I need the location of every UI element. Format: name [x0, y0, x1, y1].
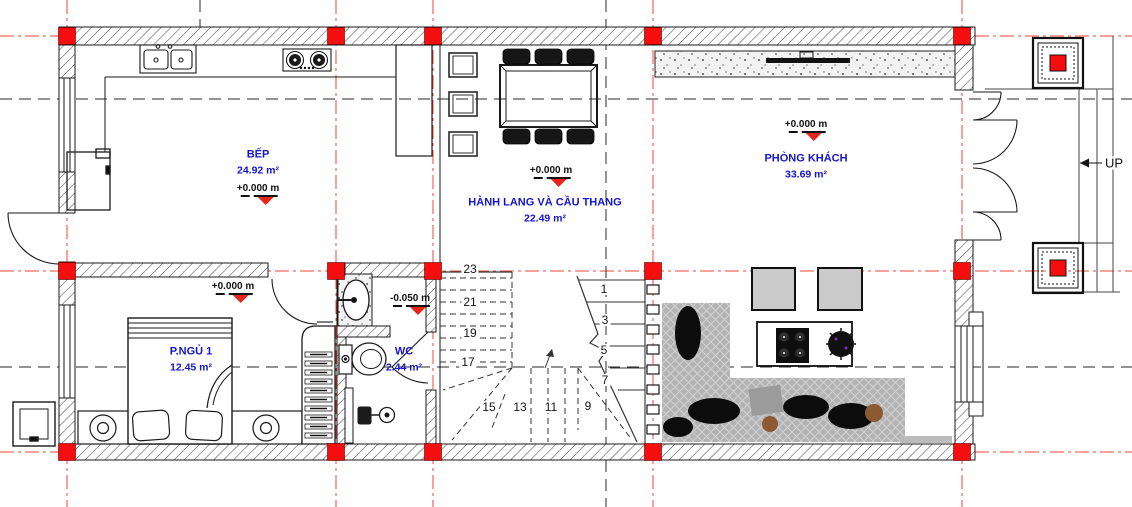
level-marker: +0.000 m	[237, 183, 280, 205]
stair-number: 15	[480, 401, 497, 413]
stair-number: 23	[461, 263, 478, 275]
room-area: 12.45 m²	[170, 361, 213, 374]
toilet	[339, 343, 386, 375]
stair-number: 13	[511, 401, 528, 413]
stair-treads-upper	[440, 272, 512, 368]
decorative-column	[1033, 243, 1083, 293]
wardrobe	[302, 326, 335, 444]
level-dash	[393, 305, 402, 307]
room-label-kitchen: BẾP 24.92 m²	[237, 149, 279, 178]
sofa-cushion	[688, 398, 740, 424]
door-kitchen-exterior	[8, 213, 59, 264]
armchair	[752, 268, 795, 310]
wall-top	[59, 27, 975, 45]
stair-direction-arrow	[545, 349, 554, 368]
room-label-living: PHÒNG KHÁCH 33.69 m²	[764, 153, 847, 182]
bed	[128, 318, 232, 444]
wall-left	[59, 398, 75, 444]
stair-number: 21	[461, 296, 478, 308]
decorative-column	[1033, 38, 1083, 88]
room-name: WC	[386, 346, 422, 360]
stair-number: 7	[600, 374, 611, 386]
dining-set	[449, 49, 597, 156]
wall-right	[955, 45, 973, 90]
up-label: UP	[1104, 157, 1124, 170]
stair-number: 3	[600, 314, 611, 326]
pillow	[185, 410, 222, 441]
level-triangle-icon	[803, 131, 823, 141]
room-label-hallway: HÀNH LANG VÀ CẦU THANG 22.49 m²	[468, 197, 621, 226]
level-dash	[533, 177, 542, 179]
kitchen-sink	[140, 45, 196, 73]
wall-middle	[59, 263, 268, 277]
room-name: BẾP	[237, 149, 279, 163]
sofa-pillow	[748, 385, 783, 416]
stair-break-line	[577, 276, 637, 442]
stair-number: 11	[543, 401, 559, 413]
sofa-cushion	[783, 395, 829, 419]
sofa-cushion	[675, 306, 701, 360]
level-triangle-icon	[408, 305, 428, 315]
stair-treads-lower	[579, 280, 645, 390]
folding-doors-porch	[973, 92, 1017, 240]
stair-number: 1	[599, 283, 610, 295]
up-arrow-icon	[1080, 159, 1102, 168]
stair-number: 19	[461, 327, 478, 339]
level-dash	[788, 131, 797, 133]
wall-wc-inner	[337, 326, 390, 337]
room-name: HÀNH LANG VÀ CẦU THANG	[468, 197, 621, 211]
ac-unit	[13, 402, 55, 446]
ottoman	[762, 416, 778, 432]
armchair	[818, 268, 862, 310]
entry-porch	[985, 36, 1120, 293]
room-area: 33.69 m²	[764, 168, 847, 181]
tv-panel	[766, 58, 850, 63]
wall-wc-right	[426, 390, 436, 444]
room-label-wc: WC 2.44 m²	[386, 346, 422, 375]
room-label-bedroom: P.NGỦ 1 12.45 m²	[170, 346, 213, 375]
level-triangle-icon	[255, 195, 275, 205]
kitchen-fixtures	[67, 45, 440, 444]
door-bedroom	[272, 279, 333, 324]
room-name: PHÒNG KHÁCH	[764, 153, 847, 167]
level-dash	[215, 293, 224, 295]
window-bedroom-left	[59, 305, 75, 398]
level-triangle-icon	[230, 293, 250, 303]
dining-table	[500, 65, 597, 127]
dining-chair	[503, 49, 594, 144]
pillow	[132, 410, 170, 441]
wall-left	[59, 45, 75, 78]
tv-feature-wall	[655, 51, 955, 77]
room-area: 22.49 m²	[468, 212, 621, 225]
stool	[449, 53, 477, 156]
level-triangle-icon	[548, 177, 568, 187]
level-marker: +0.000 m	[212, 281, 255, 303]
window-living-right	[955, 312, 983, 416]
wall-bottom	[59, 444, 975, 460]
stair-number: 5	[599, 344, 610, 356]
room-area: 2.44 m²	[386, 361, 422, 374]
floor-plan-canvas: BẾP 24.92 m² HÀNH LANG VÀ CẦU THANG 22.4…	[0, 0, 1132, 507]
stair-number: 17	[459, 356, 476, 368]
tall-cabinet	[396, 45, 432, 156]
coffee-table	[757, 322, 856, 366]
wash-basin	[338, 274, 372, 326]
level-marker: +0.000 m	[785, 119, 828, 141]
shower-head	[358, 407, 395, 424]
level-marker: +0.000 m	[530, 165, 573, 187]
ottoman	[865, 404, 883, 422]
shower-screen	[345, 388, 353, 443]
floor-plan-linework	[0, 0, 1132, 507]
stove	[283, 49, 331, 71]
room-name: P.NGỦ 1	[170, 346, 213, 360]
sofa-cushion	[663, 417, 693, 437]
plant	[826, 328, 856, 360]
stair-number: 9	[583, 400, 594, 412]
living-room-furniture	[645, 51, 955, 444]
level-marker: -0.050 m	[390, 293, 430, 315]
room-area: 24.92 m²	[237, 164, 279, 177]
level-dash	[240, 195, 249, 197]
